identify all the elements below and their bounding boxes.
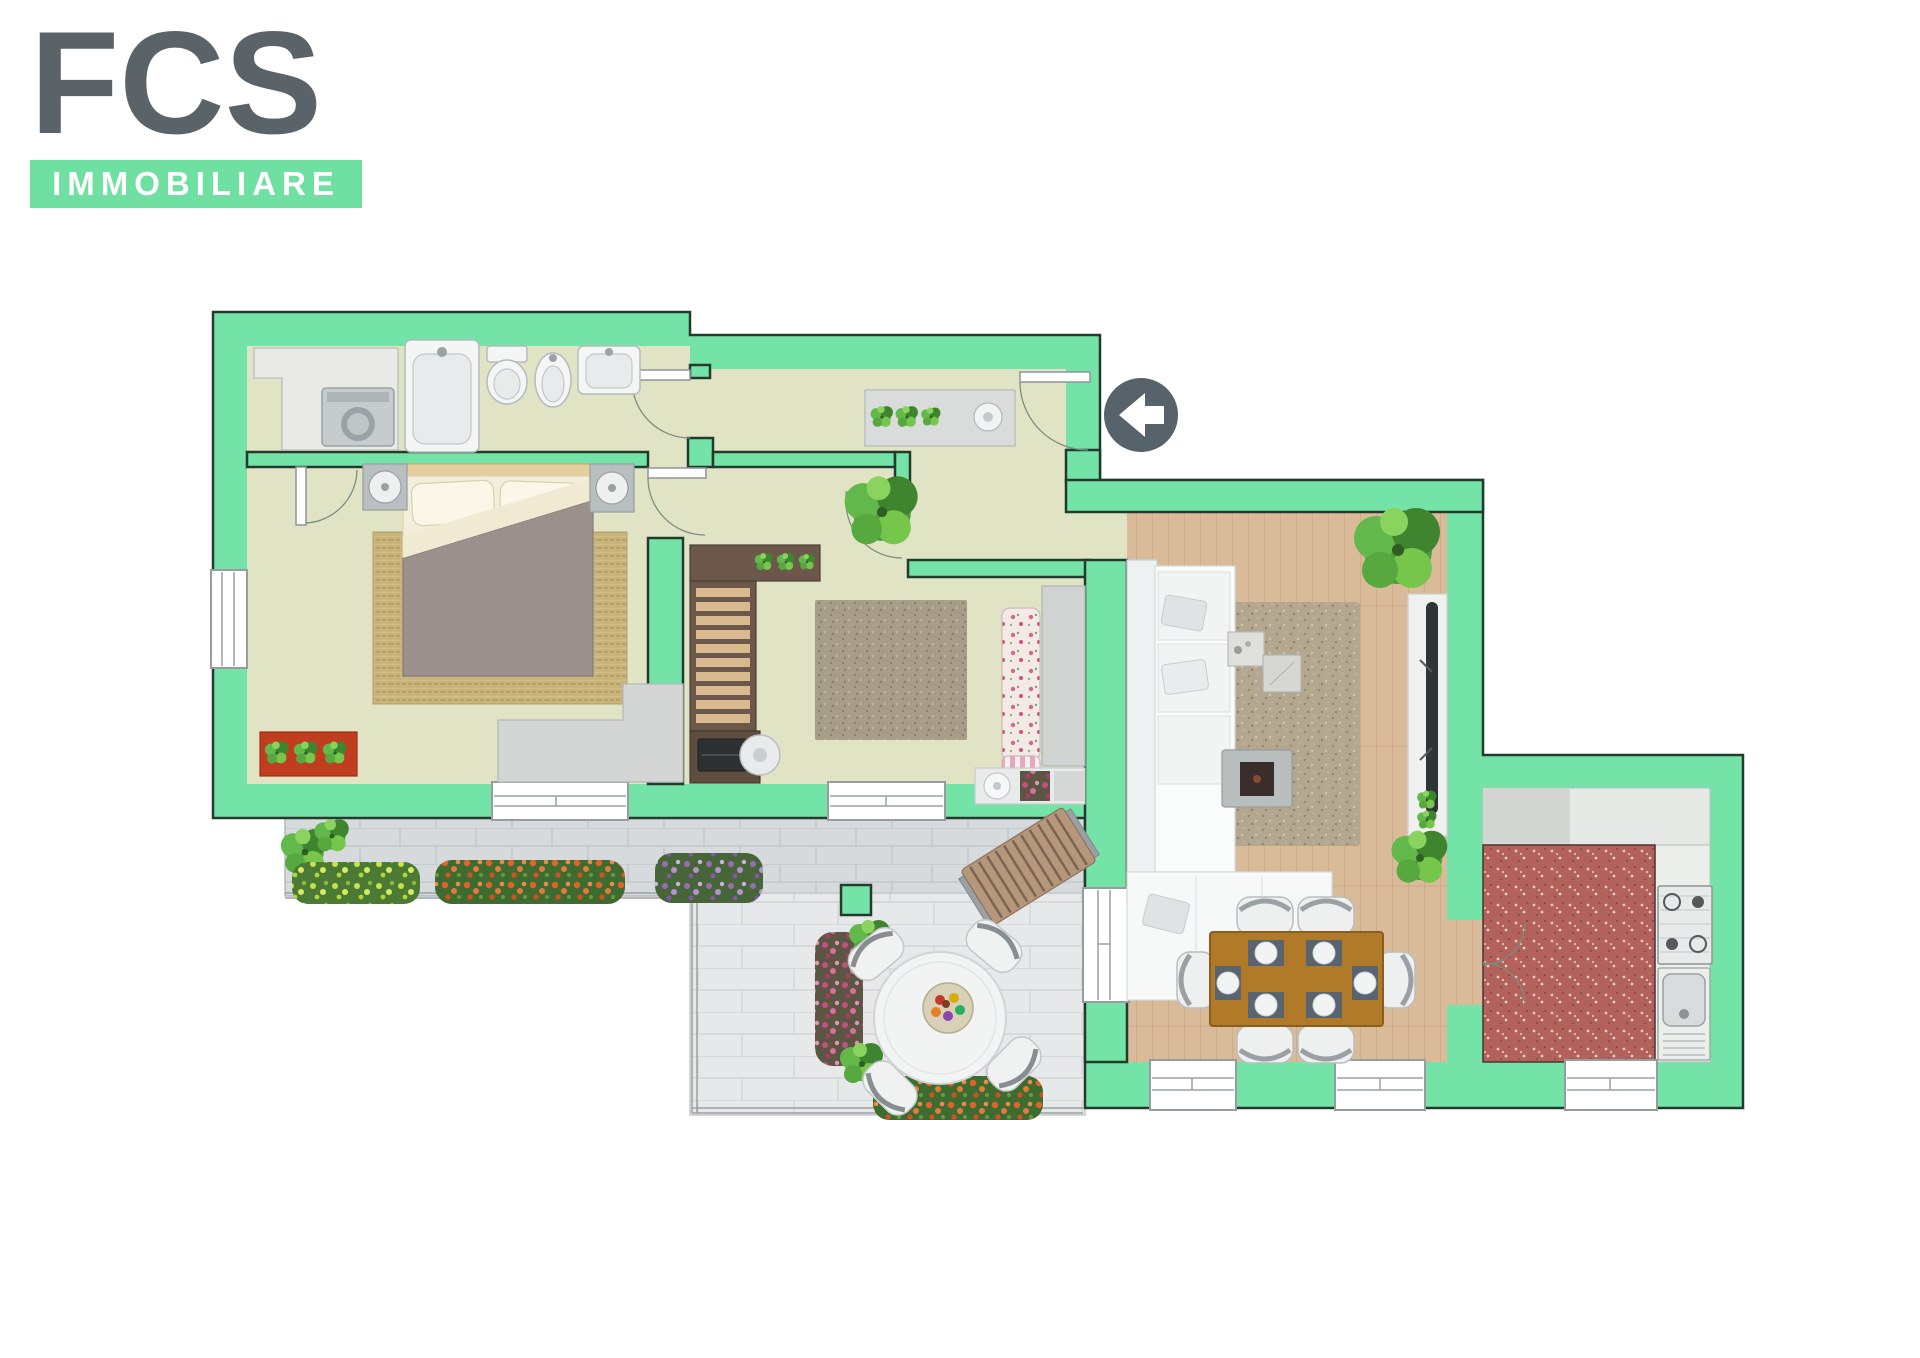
dining-chair xyxy=(1298,897,1354,935)
red-mat xyxy=(260,732,357,776)
plant-icon xyxy=(265,741,289,763)
bedroom-window xyxy=(492,782,628,820)
kitchen-floor xyxy=(1483,845,1655,1062)
hallway xyxy=(865,390,1015,446)
kitchen xyxy=(1658,886,1712,1060)
flower-box xyxy=(1020,771,1050,801)
dining-window-1 xyxy=(1150,1060,1236,1110)
fruit-bowl xyxy=(923,983,973,1033)
patio-pillar xyxy=(841,885,871,915)
page: FCS IMMOBILIARE xyxy=(0,0,1920,1358)
dining-chair xyxy=(1237,1025,1293,1063)
flower-bed-purple xyxy=(655,853,763,903)
double-bed xyxy=(403,464,593,676)
nightstand-left xyxy=(363,464,407,510)
side-shelf xyxy=(975,768,1085,804)
floor-plan xyxy=(0,0,1920,1358)
flower-bed-orange xyxy=(435,860,625,904)
plant-icon xyxy=(799,554,815,569)
plant-icon xyxy=(294,741,318,763)
large-plant-icon xyxy=(845,476,918,544)
plant-icon xyxy=(1391,831,1447,883)
washbasin xyxy=(578,346,640,394)
living-french-door xyxy=(1083,888,1129,1002)
dining-chair xyxy=(1237,897,1293,935)
sofa-pillow xyxy=(1161,659,1209,695)
toilet xyxy=(487,346,527,404)
study-window xyxy=(828,782,945,820)
study-door xyxy=(648,468,706,478)
plant-icon xyxy=(1417,791,1436,809)
dining-window-2 xyxy=(1335,1060,1425,1110)
bedroom-door xyxy=(296,467,306,525)
gas-hob xyxy=(1658,886,1712,964)
bookshelf xyxy=(690,581,756,731)
dining-chair xyxy=(1298,1025,1354,1063)
washing-machine xyxy=(322,388,394,446)
kitchen-counter-left xyxy=(1483,788,1570,845)
plant-icon xyxy=(921,408,940,426)
bidet xyxy=(535,353,571,407)
kitchen-sink xyxy=(1658,968,1710,1060)
tv-stand xyxy=(1408,594,1447,836)
bush-icon xyxy=(314,819,348,851)
entrance-door xyxy=(1020,372,1090,382)
study-rug xyxy=(815,600,967,740)
bathtub xyxy=(405,340,479,452)
television xyxy=(1426,602,1438,814)
large-plant-icon xyxy=(1354,508,1440,588)
plant-icon xyxy=(1417,811,1436,829)
kitchen-doorway-floor xyxy=(1447,920,1483,1005)
plant-icon xyxy=(896,406,918,427)
kitchen-window xyxy=(1565,1060,1657,1110)
entrance-marker xyxy=(1104,378,1178,452)
wardrobe-2 xyxy=(1042,586,1085,766)
bedroom-side-window xyxy=(211,570,247,668)
flower-bed-yellow xyxy=(292,862,420,904)
floral-armchair xyxy=(1002,608,1040,790)
plant-icon xyxy=(755,553,773,570)
plant-icon xyxy=(777,553,795,570)
plant-icon xyxy=(871,406,893,427)
nightstand-right xyxy=(590,464,634,512)
plant-icon xyxy=(323,741,347,763)
fire-table xyxy=(1222,750,1292,807)
